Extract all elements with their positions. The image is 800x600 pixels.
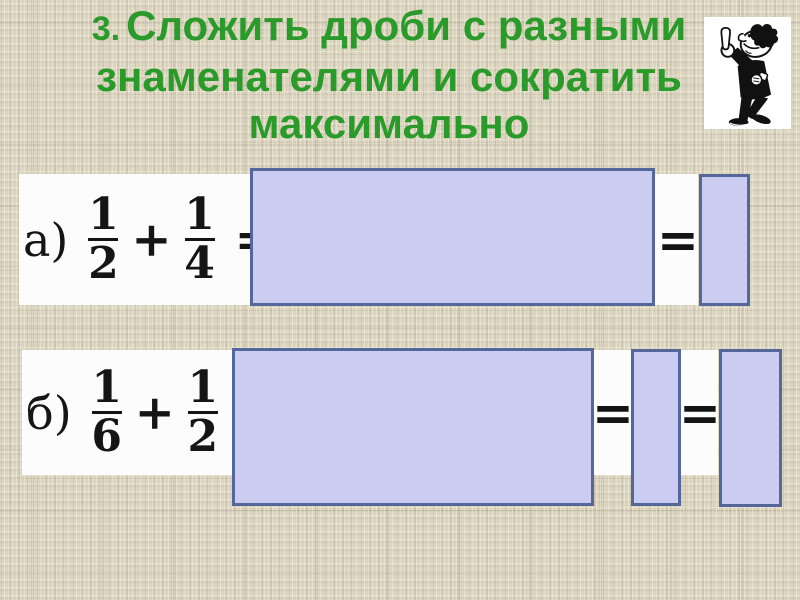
problem-label: а) — [23, 213, 68, 267]
answer-cover-box[interactable] — [232, 348, 594, 506]
plus-operator: + — [131, 216, 171, 264]
presentation-slide: 3.Сложить дроби с разными знаменателями … — [0, 0, 800, 600]
answer-cover-box[interactable] — [699, 174, 750, 306]
title-line-1-text: Сложить дроби с разными — [126, 2, 686, 49]
pointing-man-image — [704, 17, 791, 129]
title-line-2: знаменателями и сократить — [0, 53, 778, 100]
plus-operator: + — [135, 389, 175, 437]
numerator: 1 — [184, 194, 215, 236]
slide-title: 3.Сложить дроби с разными знаменателями … — [0, 2, 778, 147]
denominator: 2 — [88, 243, 119, 285]
equals-sign: = — [655, 174, 701, 305]
fraction: 1 2 — [184, 367, 222, 458]
denominator: 4 — [184, 243, 215, 285]
numerator: 1 — [188, 367, 219, 409]
denominator: 6 — [91, 416, 122, 458]
numerator: 1 — [88, 194, 119, 236]
equals-sign: = — [681, 350, 719, 475]
fraction: 1 4 — [181, 194, 219, 285]
answer-cover-box[interactable] — [631, 349, 681, 506]
fraction: 1 2 — [84, 194, 122, 285]
title-number: 3. — [92, 10, 120, 48]
fraction: 1 6 — [88, 367, 126, 458]
numerator: 1 — [91, 367, 122, 409]
answer-cover-box[interactable] — [719, 349, 782, 507]
answer-cover-box[interactable] — [250, 168, 655, 306]
title-line-3: максимально — [0, 100, 778, 147]
equals-sign: = — [594, 350, 632, 475]
problem-label: б) — [26, 386, 72, 440]
denominator: 2 — [188, 416, 219, 458]
pointing-man-icon — [705, 18, 790, 128]
title-line-1: 3.Сложить дроби с разными — [0, 2, 778, 53]
